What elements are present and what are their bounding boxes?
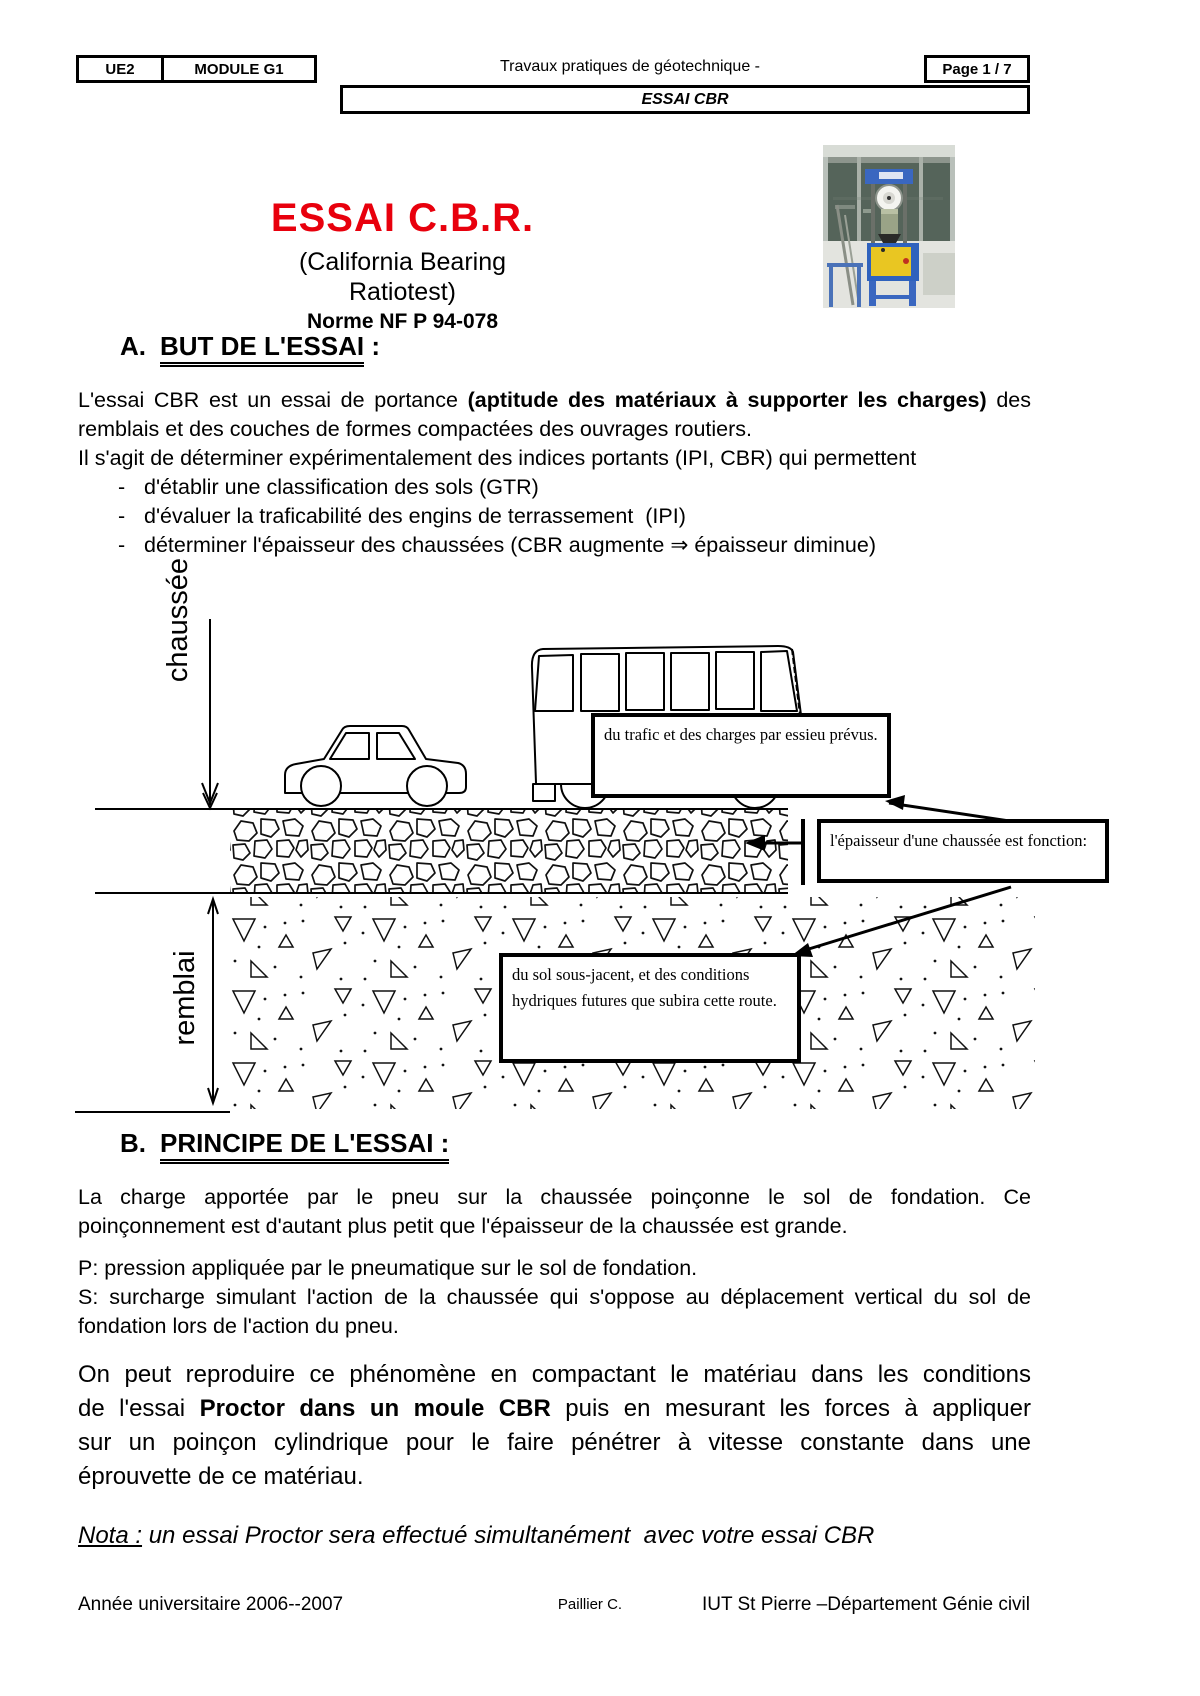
doc-title: ESSAI C.B.R. — [250, 196, 555, 240]
p-definition: P: pression appliquée par le pneumatique… — [78, 1254, 1031, 1283]
section-b-definitions: P: pression appliquée par le pneumatique… — [78, 1254, 1031, 1341]
annotation-box-traffic: du trafic et des charges par essieu prév… — [591, 713, 891, 798]
a-intro-line-3: Il s'agit de déterminer expérimentalemen… — [78, 444, 1031, 473]
bullet-item: -d'établir une classification des sols (… — [118, 473, 1031, 502]
banner-box: ESSAI CBR — [340, 85, 1030, 114]
pavement-layer — [95, 809, 788, 893]
section-a-title: BUT DE L'ESSAI — [160, 331, 364, 367]
ue-label: UE2 — [105, 61, 134, 78]
footer-institution: IUT St Pierre –Département Génie civil — [702, 1594, 1030, 1616]
nota-text: un essai Proctor sera effectué simultané… — [142, 1522, 874, 1549]
s-definition-line-2: fondation lors de l'action du pneu. — [78, 1312, 1031, 1341]
b-p2-bold: Proctor dans un moule CBR — [200, 1395, 551, 1422]
doc-subtitle: (California Bearing Ratiotest) — [250, 247, 555, 307]
a-intro-post: des — [987, 388, 1031, 412]
bullet-text: d'évaluer la traficabilité des engins de… — [144, 502, 686, 531]
section-b-paragraph-1: La charge apportée par le pneu sur la ch… — [78, 1183, 1031, 1241]
car-drawing — [285, 726, 466, 806]
remblai-layer-label: remblai — [168, 928, 202, 1068]
a-intro-line-2: remblais et des couches de formes compac… — [78, 415, 1031, 444]
header-box-ue: UE2 — [76, 55, 164, 83]
section-b-letter: B. — [120, 1128, 146, 1158]
section-b-paragraph-2: On peut reproduire ce phénomène en compa… — [78, 1358, 1031, 1494]
bullet-item: -d'évaluer la traficabilité des engins d… — [118, 502, 1031, 531]
cbr-press-photo-drawing — [823, 145, 955, 308]
nota-label: Nota : — [78, 1522, 142, 1549]
b-p2-line-1: On peut reproduire ce phénomène en compa… — [78, 1358, 1031, 1392]
section-b-heading: B.PRINCIPE DE L'ESSAI : — [120, 1128, 449, 1159]
page-number: Page 1 / 7 — [942, 61, 1011, 78]
header-page-box: Page 1 / 7 — [924, 55, 1030, 83]
cbr-press-photo — [823, 145, 955, 308]
chaussee-arrow — [202, 619, 218, 808]
title-block: ESSAI C.B.R. (California Bearing Ratiote… — [250, 196, 555, 334]
section-a-body: L'essai CBR est un essai de portance (ap… — [78, 386, 1031, 560]
section-b-title: PRINCIPE DE L'ESSAI : — [160, 1128, 449, 1164]
footer-author: Paillier C. — [480, 1596, 700, 1613]
a-intro-line-1: L'essai CBR est un essai de portance (ap… — [78, 386, 1031, 415]
b-p2-post: puis en mesurant les forces à appliquer — [551, 1395, 1031, 1422]
nota-line: Nota : un essai Proctor sera effectué si… — [78, 1522, 874, 1550]
bullet-dash: - — [118, 473, 144, 502]
b-p1-line-1: La charge apportée par le pneu sur la ch… — [78, 1183, 1031, 1212]
bullet-dash: - — [118, 502, 144, 531]
section-a-heading: A.BUT DE L'ESSAI : — [120, 331, 380, 362]
module-label: MODULE G1 — [194, 61, 283, 78]
chaussee-layer-label: chaussée — [161, 550, 195, 690]
b-p2-line-2: de l'essai Proctor dans un moule CBR pui… — [78, 1392, 1031, 1426]
remblai-arrow — [208, 899, 218, 1103]
header-box-group: UE2 MODULE G1 — [76, 55, 317, 83]
b-p1-line-2: poinçonnement est d'autant plus petit qu… — [78, 1212, 1031, 1241]
road-cross-section-diagram: chaussée remblai du trafic et des charge… — [75, 553, 1140, 1125]
annotation-box-soil: du sol sous-jacent, et des conditions hy… — [499, 953, 801, 1063]
banner-title: ESSAI CBR — [641, 91, 728, 109]
a-intro-pre: L'essai CBR est un essai de portance — [78, 388, 468, 412]
bullet-text: d'établir une classification des sols (G… — [144, 473, 539, 502]
header-course-title: Travaux pratiques de géotechnique - — [340, 58, 920, 76]
section-a-letter: A. — [120, 331, 146, 361]
footer-academic-year: Année universitaire 2006--2007 — [78, 1594, 343, 1616]
annotation-box-thickness: l'épaisseur d'une chaussée est fonction: — [817, 819, 1109, 883]
b-p2-pre: de l'essai — [78, 1395, 200, 1422]
header-box-module: MODULE G1 — [164, 55, 317, 83]
b-p2-line-4: éprouvette de ce matériau. — [78, 1460, 1031, 1494]
section-a-colon: : — [364, 331, 380, 361]
a-intro-bold: (aptitude des matériaux à supporter les … — [468, 388, 987, 412]
s-definition-line-1: S: surcharge simulant l'action de la cha… — [78, 1283, 1031, 1312]
b-p2-line-3: sur un poinçon cylindrique pour le faire… — [78, 1426, 1031, 1460]
